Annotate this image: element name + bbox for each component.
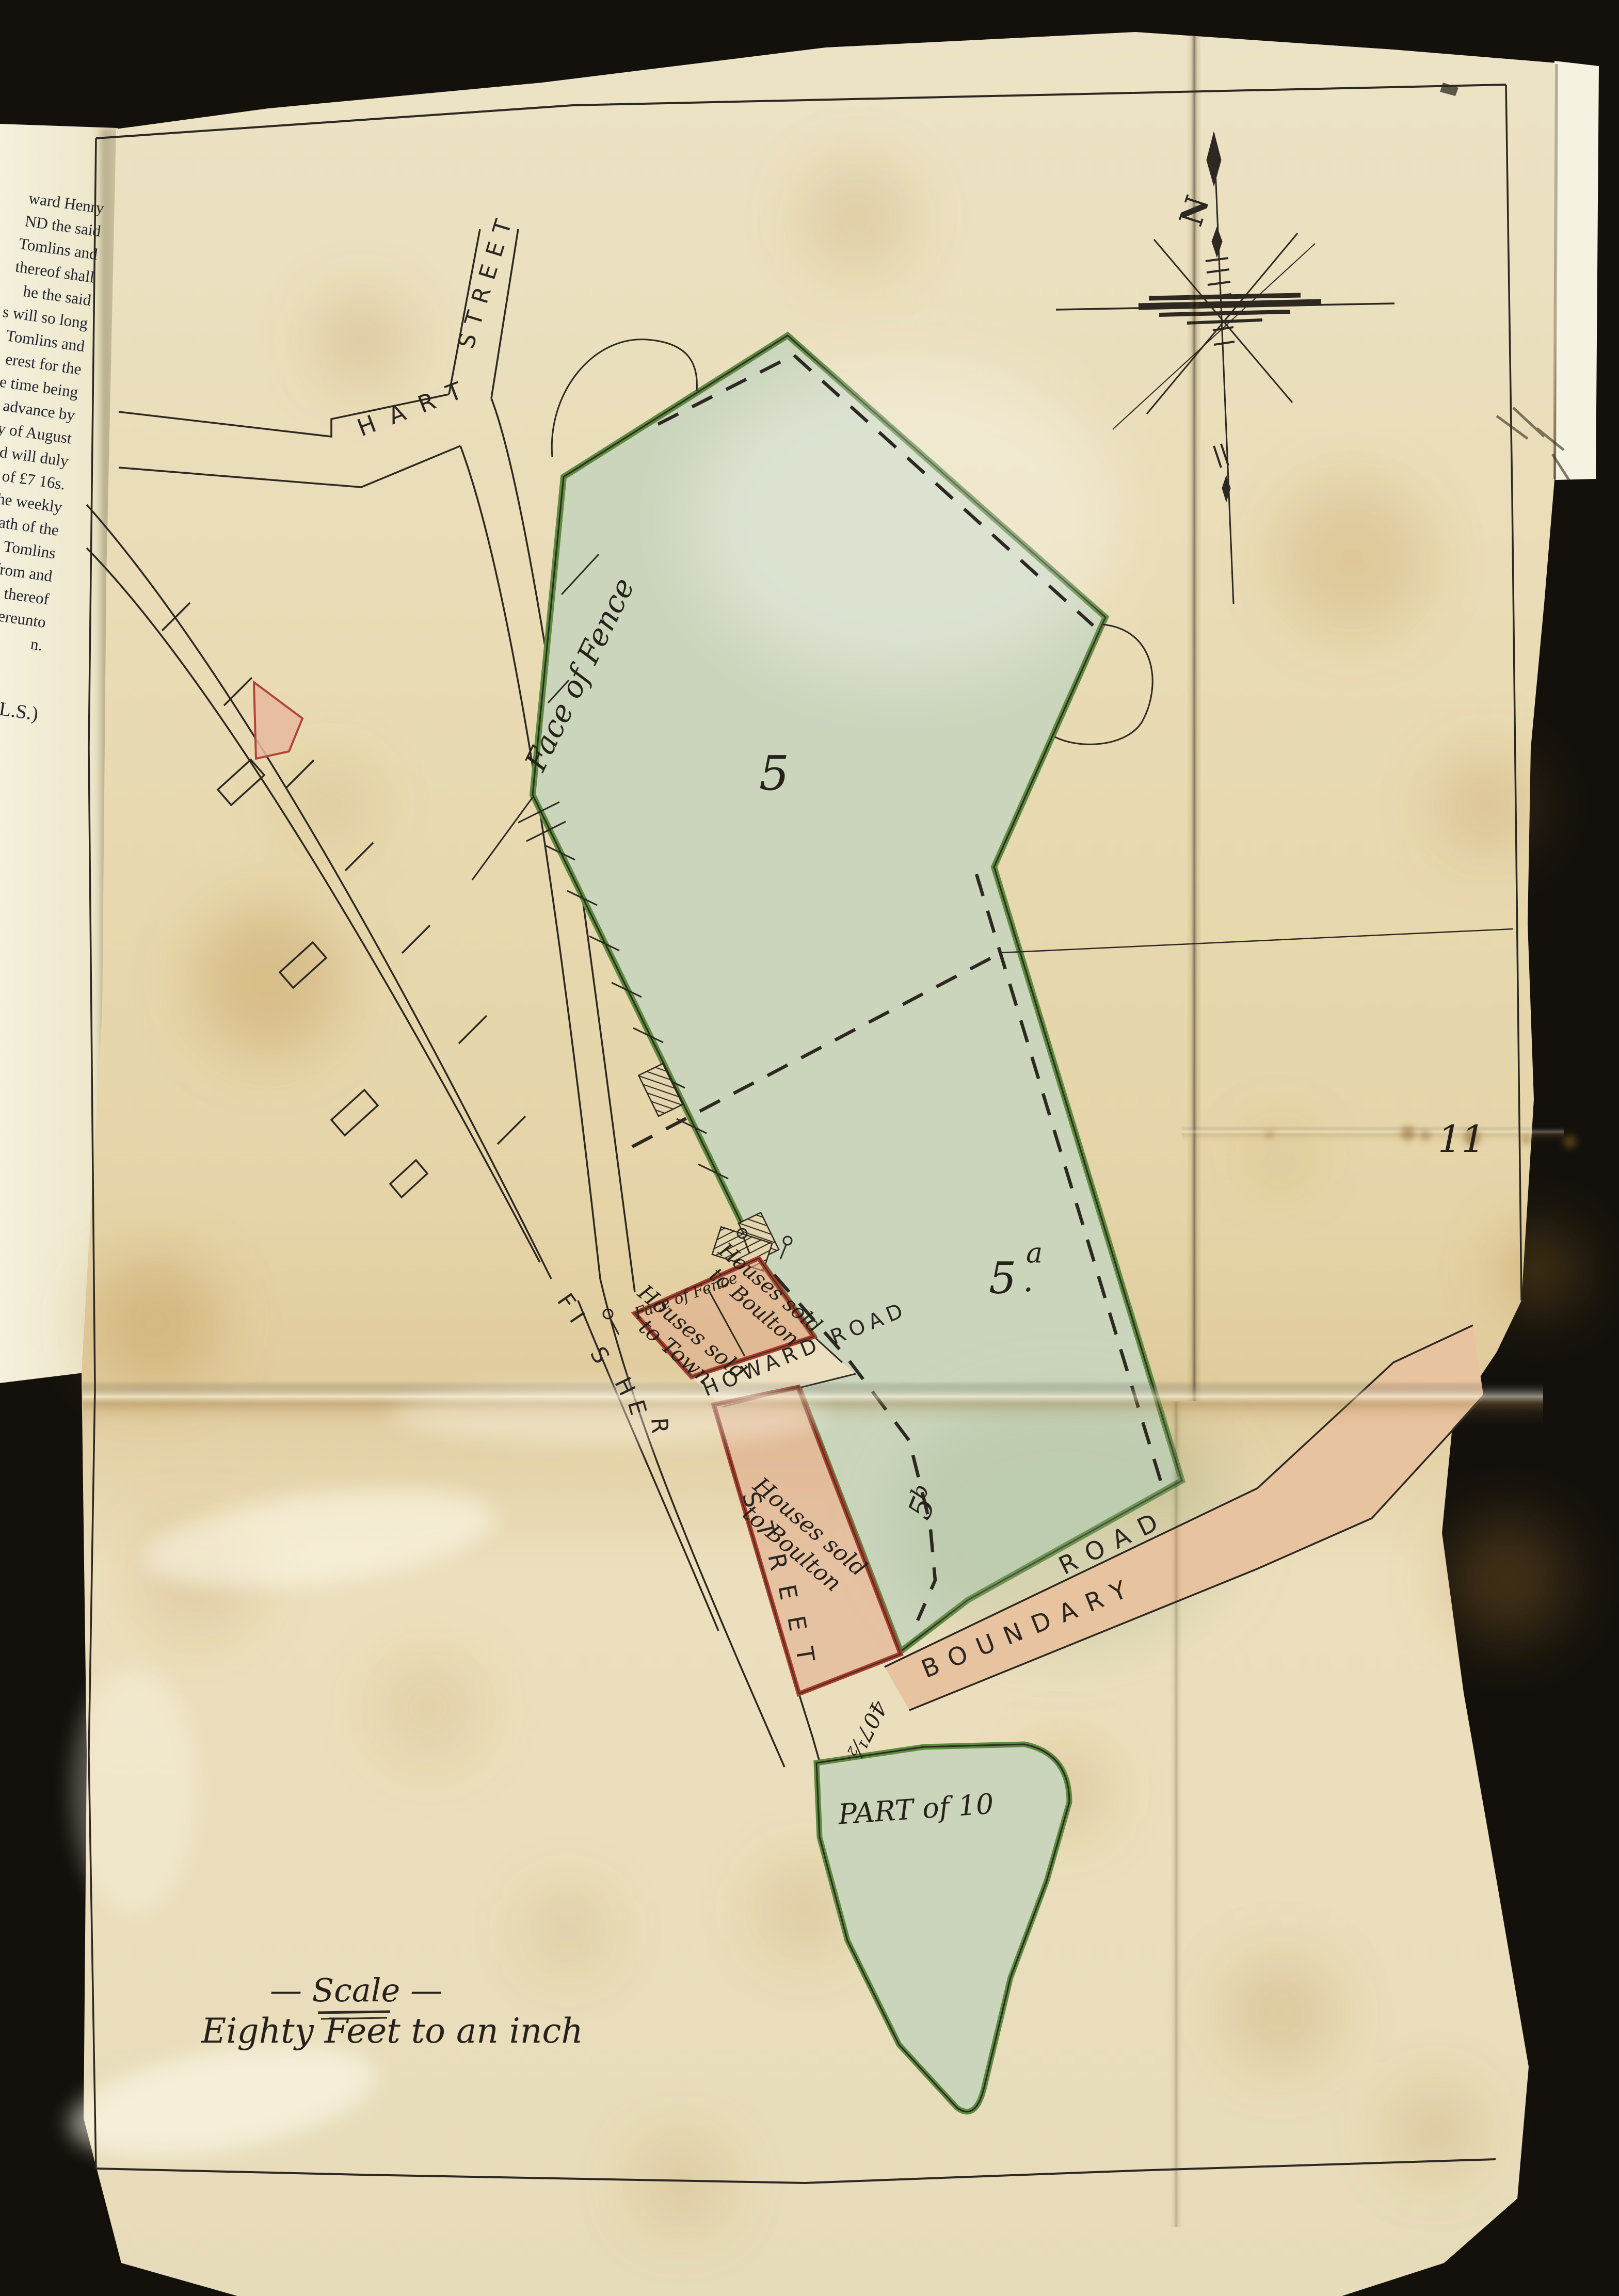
plan-canvas: ward Henry ND the said Tomlins and there… [0,0,1619,2296]
label-parcel-5a-dot: . [1023,1261,1033,1299]
scanned-plan-page: ward Henry ND the said Tomlins and there… [0,0,1619,2296]
label-parcel-5: 5 [759,746,790,801]
fisher-letter: R [646,1417,673,1434]
label-parcel-5a-base: 5 [989,1253,1016,1304]
book-text-line: n. [29,635,44,654]
page-number: 11 [1438,1117,1485,1161]
loose-page-strip [1554,61,1599,480]
scale-title: — Scale — [270,1971,442,2009]
scale-subtitle: Eighty Feet to an inch [201,2011,583,2051]
